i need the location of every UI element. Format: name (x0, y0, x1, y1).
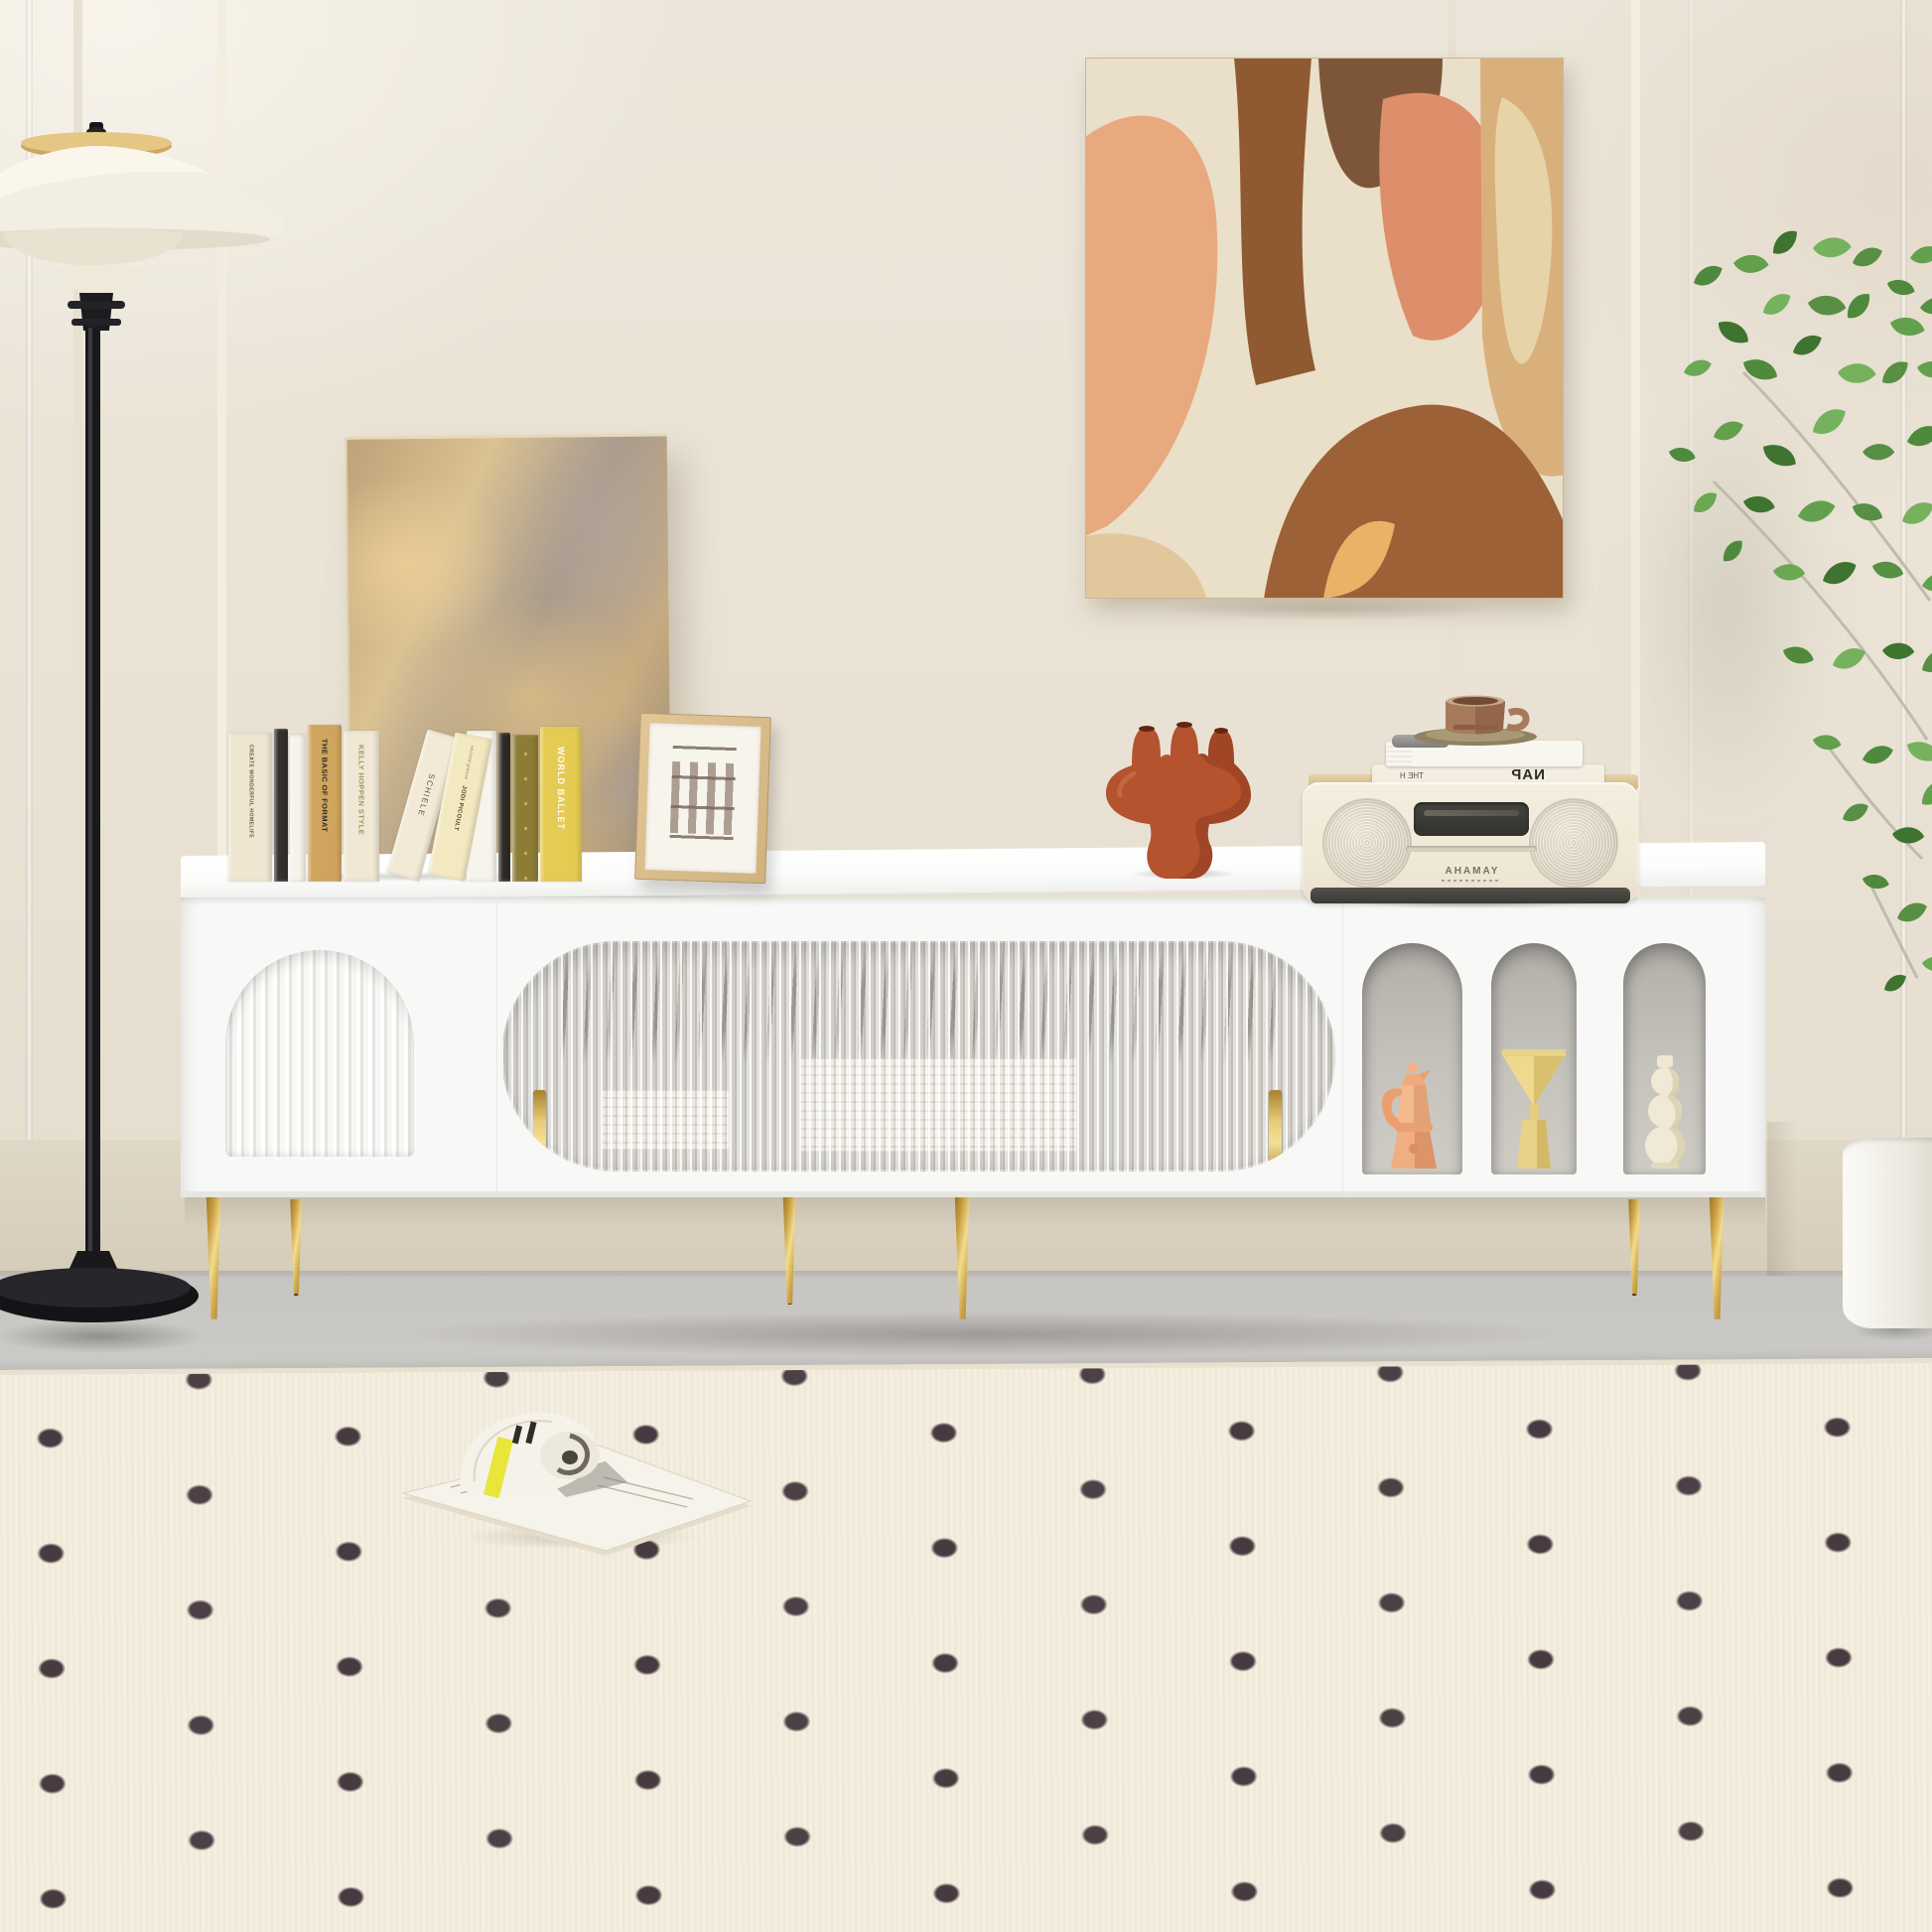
book-spine (290, 735, 306, 882)
book-spine (512, 735, 538, 882)
triangle-vase (1499, 1046, 1569, 1171)
radio-base (1311, 888, 1630, 903)
magazine (395, 1382, 762, 1571)
stand-leg (1702, 1197, 1731, 1328)
coffee-cup (1410, 689, 1541, 747)
radio-speaker: YAMAHA (1303, 782, 1638, 903)
fluted-arch-door (225, 950, 414, 1157)
book-spine (274, 729, 288, 882)
book-spine: KELLY HOPPEN STYLE (344, 731, 379, 882)
display-niche (1362, 943, 1462, 1174)
book-spine: CREATE WONDERFUL HOMELIFE (228, 733, 272, 882)
stand-bottom-edge (181, 1191, 1765, 1197)
tv-stand (181, 856, 1765, 1332)
moka-pot (1375, 1041, 1450, 1171)
display-niche (1491, 943, 1577, 1174)
cd-slot (1406, 846, 1537, 852)
terracotta-vase (1104, 722, 1253, 881)
radio-display (1414, 802, 1529, 836)
frame-mat (644, 723, 760, 874)
stand-leg (199, 1197, 228, 1328)
rug (0, 1358, 1932, 1932)
radio-model-text (1442, 880, 1499, 882)
stand-leg (284, 1199, 308, 1303)
book-spine: THE BASIC OF FORMAT (308, 725, 342, 882)
door-handle-right (1269, 1090, 1282, 1172)
book-spine (498, 733, 510, 882)
abstract-painting (1085, 58, 1564, 599)
stand-leg (947, 1197, 977, 1328)
door-handle-left (533, 1090, 546, 1172)
reeded-glass-doors (501, 941, 1335, 1172)
facade-sketch (669, 746, 736, 847)
panel-seam (1342, 901, 1344, 1195)
planter-pot (1843, 1138, 1932, 1328)
panel-seam (496, 901, 498, 1195)
radio-brand-text: YAMAHA (1303, 866, 1638, 877)
living-room-scene: CREATE WONDERFUL HOMELIFE THE BASIC OF F… (0, 0, 1932, 1932)
photo-frame (634, 713, 771, 885)
plant (1624, 223, 1932, 1047)
stand-leg (1622, 1199, 1646, 1303)
book-spine: WORLD BALLET (540, 727, 582, 882)
stand-leg (776, 1197, 802, 1312)
glass-flutes (501, 941, 1335, 1172)
book-row: CREATE WONDERFUL HOMELIFE THE BASIC OF F… (228, 717, 592, 882)
gourd-vase (1637, 1053, 1693, 1171)
